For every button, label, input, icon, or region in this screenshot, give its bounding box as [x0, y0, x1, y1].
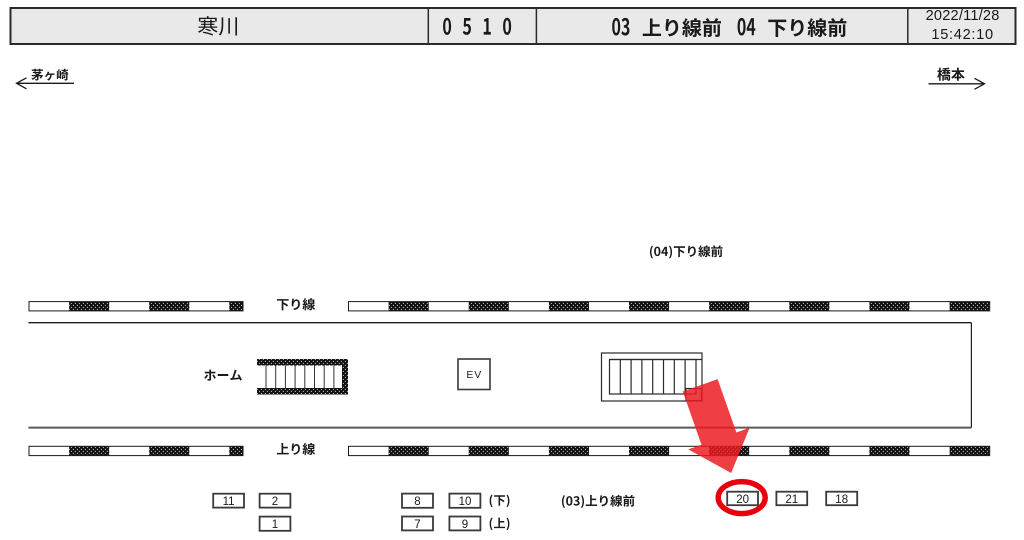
svg-text:2022/11/28: 2022/11/28: [926, 8, 1000, 24]
svg-text:21: 21: [785, 494, 798, 506]
svg-text:10: 10: [459, 496, 472, 508]
svg-text:8: 8: [414, 496, 420, 508]
svg-text:1: 1: [272, 519, 278, 531]
svg-text:2: 2: [272, 496, 278, 508]
svg-text:18: 18: [835, 494, 848, 506]
svg-text:EV: EV: [466, 369, 482, 381]
svg-text:20: 20: [736, 494, 749, 506]
svg-text:11: 11: [223, 496, 235, 508]
svg-text:15:42:10: 15:42:10: [931, 27, 993, 43]
svg-text:7: 7: [414, 519, 420, 531]
svg-text:9: 9: [462, 519, 468, 531]
